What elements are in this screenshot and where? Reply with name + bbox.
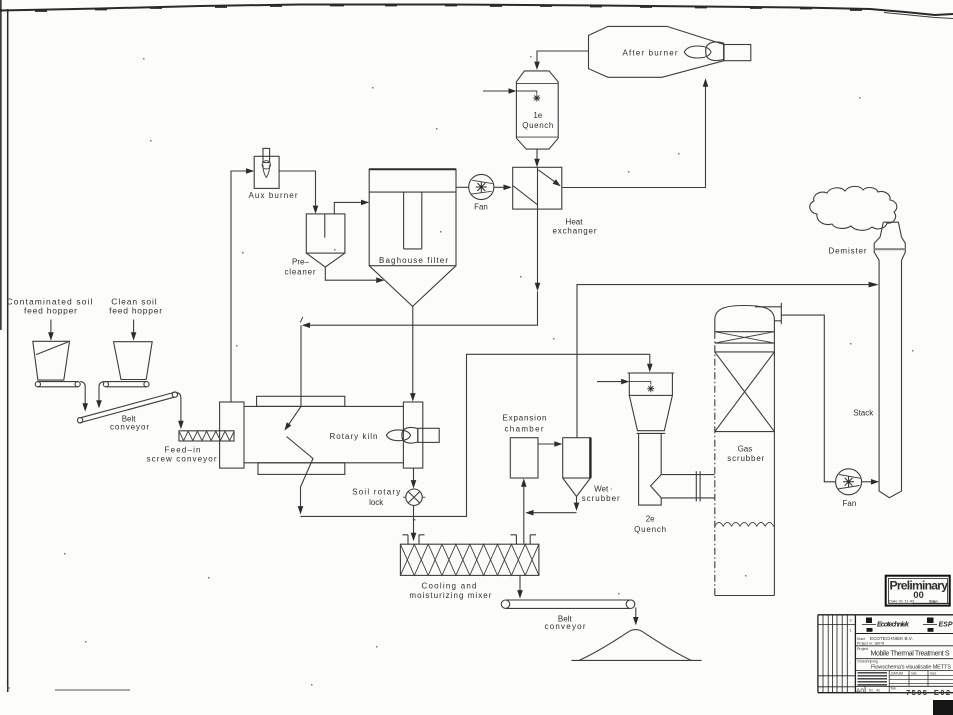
svg-text:Tek.: Tek. xyxy=(891,687,897,691)
svg-text:Gez.: Gez. xyxy=(930,671,937,675)
svg-text:Baghouse filter: Baghouse filter xyxy=(379,256,448,265)
svg-text:After burner: After burner xyxy=(623,49,678,58)
svg-text:feed hopper: feed hopper xyxy=(109,305,162,315)
svg-text:A0: A0 xyxy=(856,688,864,695)
svg-text:1: 1 xyxy=(850,628,853,633)
svg-text:ESP: ESP xyxy=(939,622,953,629)
svg-text:00: 00 xyxy=(913,590,923,600)
svg-text:2e: 2e xyxy=(646,515,655,524)
svg-text:Fan: Fan xyxy=(843,499,857,508)
svg-text:Stack: Stack xyxy=(853,409,874,418)
svg-text:Date 31-11-92: Date 31-11-92 xyxy=(889,599,915,604)
svg-text:ECOTECHNIEK B.V.: ECOTECHNIEK B.V. xyxy=(870,636,913,641)
svg-text:Quench: Quench xyxy=(634,525,666,534)
svg-text:exchanger: exchanger xyxy=(553,227,597,236)
svg-text:Fan: Fan xyxy=(474,203,488,212)
svg-text:Soil rotary: Soil rotary xyxy=(352,488,400,497)
svg-text:Omschrijving: Omschrijving xyxy=(857,660,878,664)
svg-text:lock: lock xyxy=(369,498,384,507)
svg-text:Expansion: Expansion xyxy=(503,414,547,423)
svg-text:screw conveyor: screw conveyor xyxy=(147,455,217,464)
svg-text:Quench: Quench xyxy=(522,121,553,130)
svg-text:Ecotechniek: Ecotechniek xyxy=(877,622,910,629)
svg-text:Rotary kiln: Rotary kiln xyxy=(330,432,378,441)
svg-text:Gas: Gas xyxy=(738,445,753,454)
svg-text:Feed–in: Feed–in xyxy=(165,446,201,455)
svg-text:moisturizing mixer: moisturizing mixer xyxy=(409,591,491,600)
svg-text:1e: 1e xyxy=(533,111,542,120)
svg-text:chamber: chamber xyxy=(505,425,544,434)
svg-text:61 . 41: 61 . 41 xyxy=(869,689,880,693)
svg-text:Wet ·: Wet · xyxy=(594,485,613,494)
svg-text:scrubber: scrubber xyxy=(582,494,620,503)
svg-text:feed hopper: feed hopper xyxy=(24,305,77,315)
svg-text:Project nr. 18078: Project nr. 18078 xyxy=(857,642,884,646)
svg-text:Cooling and: Cooling and xyxy=(422,582,477,591)
svg-text:Mobile Thermal Treatment S: Mobile Thermal Treatment S xyxy=(871,651,950,658)
svg-text:Flowschema's visualisatie METT: Flowschema's visualisatie METTS xyxy=(871,664,951,670)
svg-text:Sign: Sign xyxy=(929,599,938,604)
svg-text:conveyor: conveyor xyxy=(110,423,149,432)
svg-text:Pre–: Pre– xyxy=(292,258,309,267)
svg-text:scrubber: scrubber xyxy=(727,454,764,463)
svg-text:Demister: Demister xyxy=(829,247,867,256)
svg-text:cleaner: cleaner xyxy=(285,268,316,277)
svg-text::: : xyxy=(850,660,851,665)
svg-text:7505–E02: 7505–E02 xyxy=(906,688,950,697)
svg-text:.: . xyxy=(850,651,851,656)
svg-text:2: 2 xyxy=(850,618,853,623)
svg-text:Aux burner: Aux burner xyxy=(249,191,298,200)
svg-text:Project: Project xyxy=(857,647,868,651)
svg-text:Klant: Klant xyxy=(857,637,865,641)
svg-text:Heat: Heat xyxy=(566,218,584,227)
svg-text:Get.: Get. xyxy=(911,671,917,675)
svg-text:.: . xyxy=(850,679,851,684)
svg-text:DATUM: DATUM xyxy=(891,671,903,675)
